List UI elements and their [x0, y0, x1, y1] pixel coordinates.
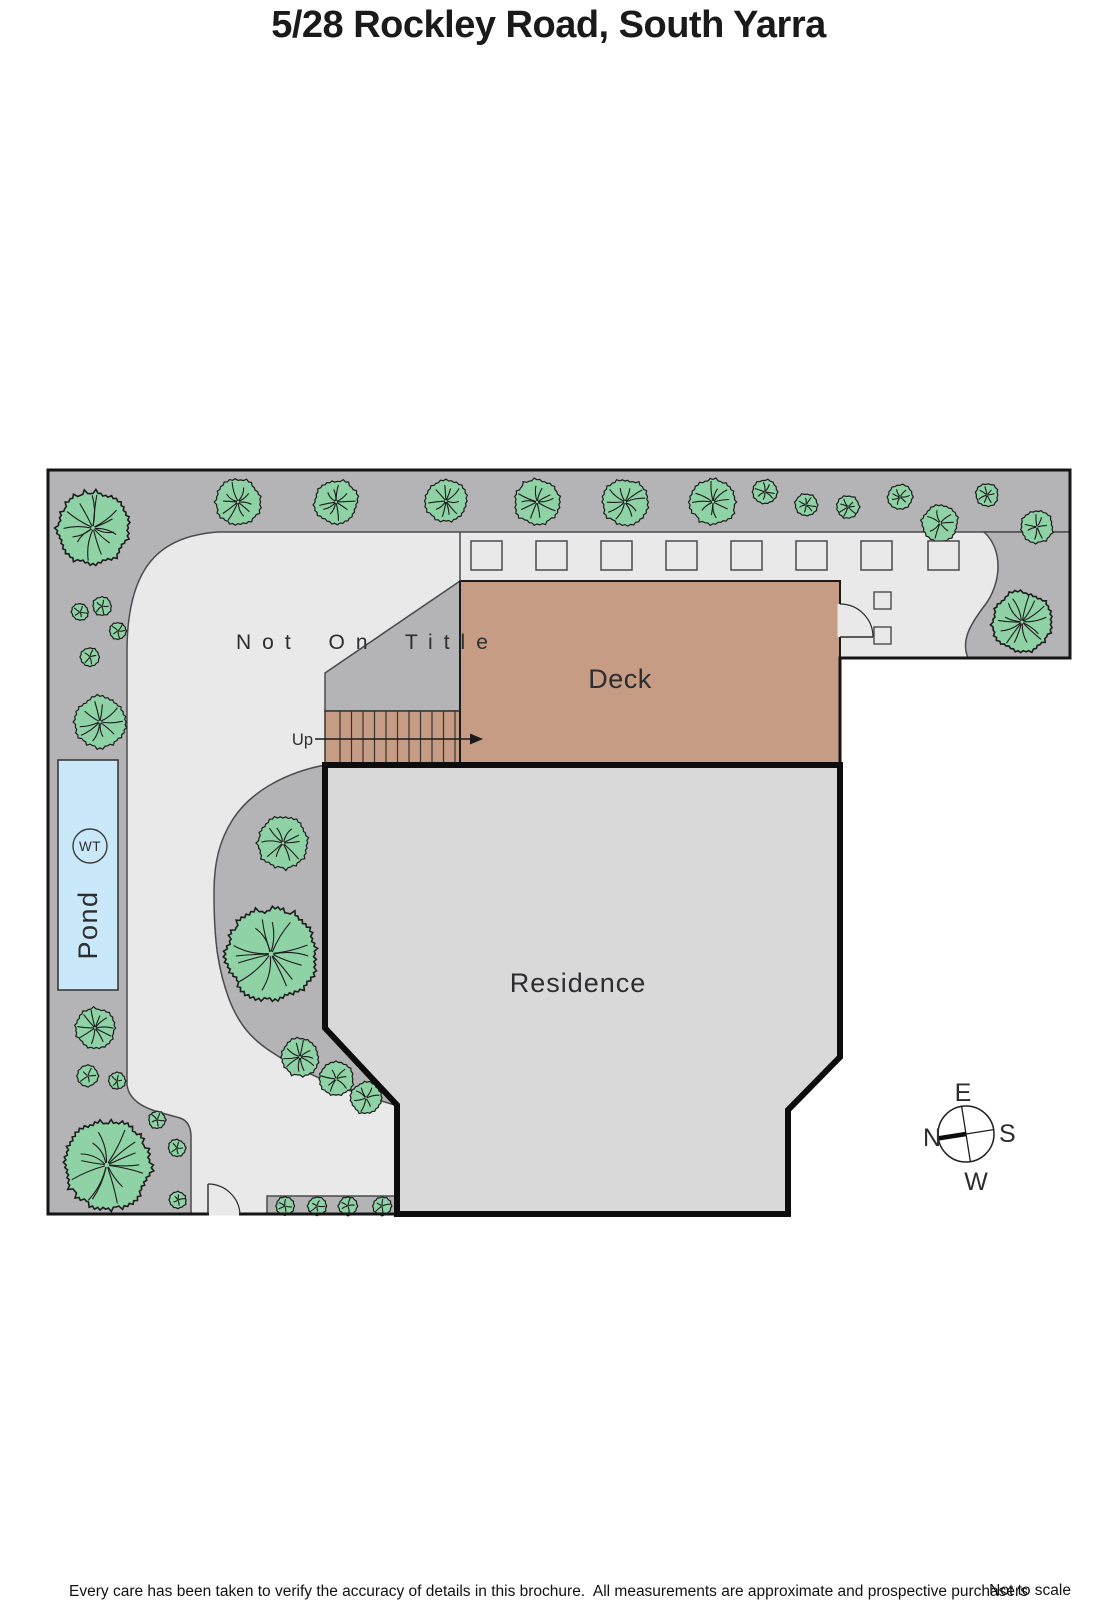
planter-box-small [874, 592, 891, 609]
planter-box [666, 541, 697, 570]
not-on-title-label: Not On Title [236, 631, 499, 654]
water-tank-label: WT [79, 839, 101, 854]
stairs [325, 711, 460, 765]
planter-box [536, 541, 567, 570]
pond-label: Pond [73, 890, 103, 959]
disclaimer-line-1: Every care has been taken to verify the … [0, 1583, 1097, 1600]
planter-box [861, 541, 892, 570]
up-label: Up [292, 731, 313, 749]
compass-w-label: W [964, 1168, 988, 1196]
planter-box [731, 541, 762, 570]
compass-n-label: N [923, 1124, 941, 1152]
residence-label: Residence [510, 968, 647, 998]
planter-box-small [874, 627, 891, 644]
planter-box [471, 541, 502, 570]
planter-box [928, 541, 959, 570]
pond-group: WT Pond [58, 760, 118, 990]
planter-box [796, 541, 827, 570]
planter-box [601, 541, 632, 570]
disclaimer-text: Every care has been taken to verify the … [0, 1549, 1097, 1600]
deck-label: Deck [588, 664, 652, 694]
site-plan: WT Pond Not On Title Deck Up Residence E… [0, 0, 1097, 1600]
compass-rose: E S W N [923, 1079, 1016, 1196]
brochure-page: 5/28 Rockley Road, South Yarra [0, 0, 1097, 1600]
compass-e-label: E [955, 1079, 972, 1107]
scale-note: Not to scale [989, 1582, 1071, 1600]
compass-north-pointer [938, 1134, 966, 1138]
stairs-area [325, 711, 460, 765]
tree [975, 484, 997, 507]
compass-s-label: S [999, 1120, 1016, 1148]
